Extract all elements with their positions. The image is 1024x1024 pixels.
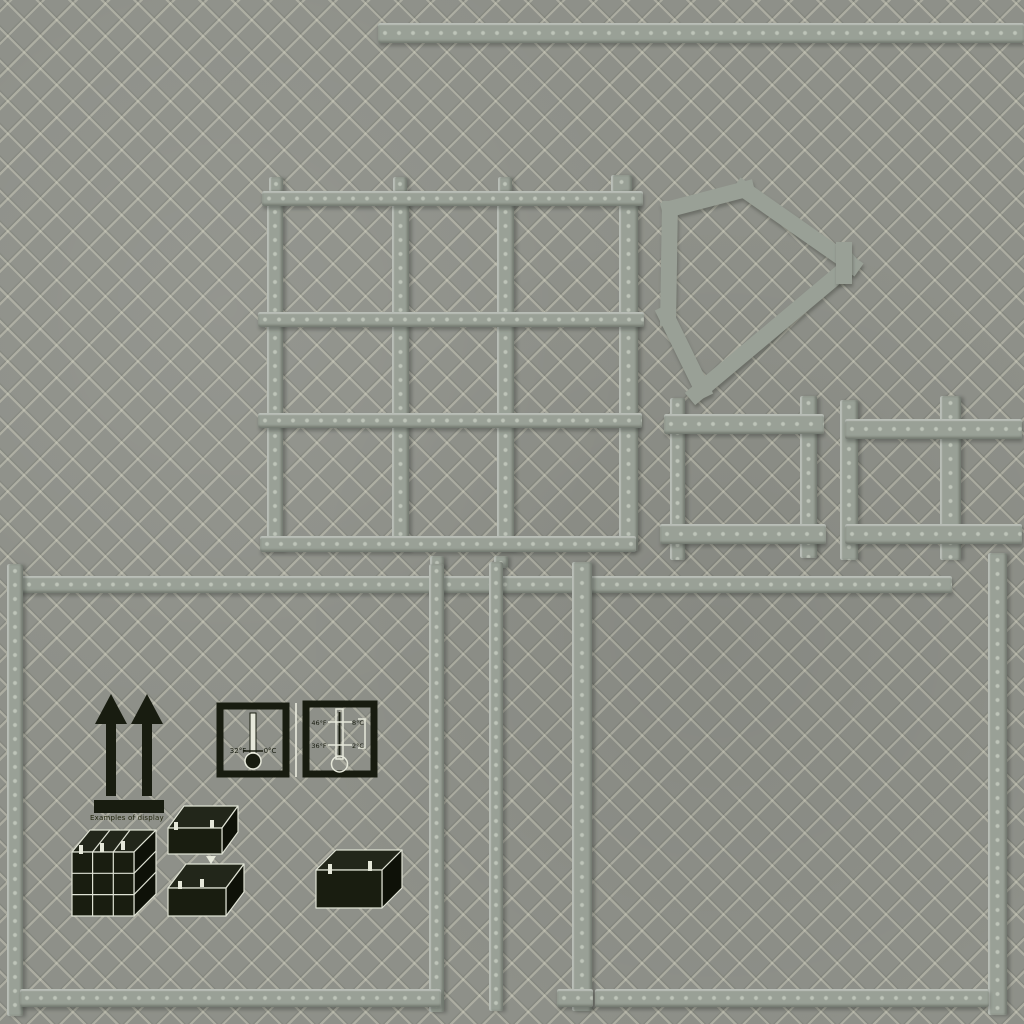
embossed-seam <box>267 191 283 551</box>
embossed-seam <box>595 989 989 1007</box>
embossed-seam <box>845 419 1022 439</box>
this-way-up-icon <box>94 694 164 816</box>
embossed-seam <box>20 989 441 1007</box>
embossed-seam <box>572 562 592 1011</box>
embossed-seam <box>498 177 512 192</box>
embossed-seam <box>660 524 826 544</box>
temperature-range-icon: 46°F 8°C 36°F 2°C <box>302 700 378 778</box>
decal-caption: Examples of display <box>90 815 176 823</box>
embossed-seam <box>611 175 632 192</box>
embossed-seam <box>262 191 643 206</box>
embossed-seam <box>497 191 514 551</box>
embossed-seam <box>258 413 642 428</box>
svg-text:0°C: 0°C <box>264 747 277 755</box>
embossed-seam <box>8 576 952 593</box>
embossed-seam <box>489 562 503 1011</box>
embossed-seam <box>988 553 1007 1015</box>
embossed-seam <box>557 989 593 1007</box>
svg-text:36°F: 36°F <box>311 742 327 750</box>
embossed-seam <box>429 564 444 1012</box>
embossed-seam <box>269 177 283 192</box>
embossed-seam <box>258 312 644 327</box>
embossed-seam <box>393 177 407 192</box>
svg-text:46°F: 46°F <box>311 719 327 727</box>
crate-texture-surface: Examples of display 32°F 0°C 46°F 8°C 36… <box>0 0 1024 1024</box>
svg-text:32°F: 32°F <box>230 747 246 755</box>
embossed-seam <box>664 414 824 434</box>
embossed-seam <box>7 564 23 1016</box>
embossed-seam <box>392 191 409 551</box>
embossed-seam <box>619 191 638 551</box>
embossed-pentagon-seam <box>640 170 880 410</box>
embossed-seam <box>378 23 1024 43</box>
svg-text:8°C: 8°C <box>352 719 364 727</box>
stacked-boxes-icon <box>70 826 158 918</box>
single-box-icon <box>314 848 404 910</box>
decal-divider <box>295 703 297 777</box>
svg-text:2°C: 2°C <box>352 742 364 750</box>
embossed-seam <box>845 524 1022 544</box>
embossed-seam <box>260 536 636 552</box>
keep-from-freezing-icon: 32°F 0°C <box>216 702 290 778</box>
stack-two-boxes-icon <box>166 798 250 918</box>
